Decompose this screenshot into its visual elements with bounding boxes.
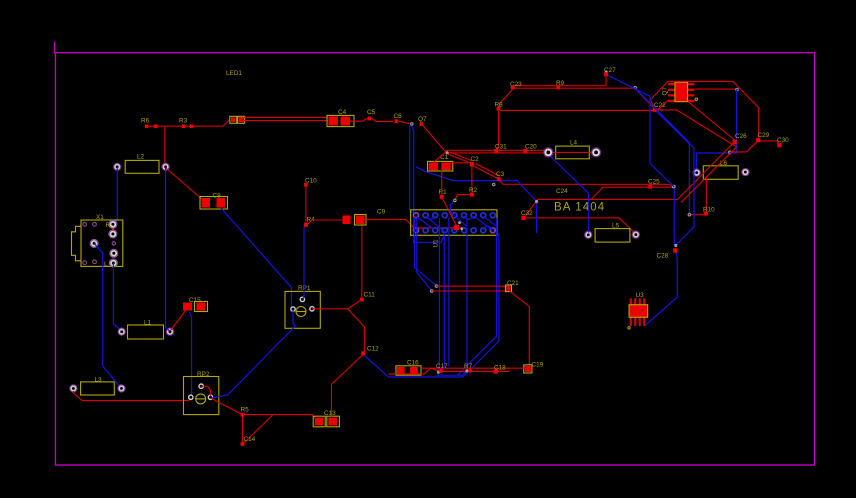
svg-text:BA 1404: BA 1404	[554, 202, 605, 214]
svg-text:U1: U1	[433, 239, 440, 248]
svg-text:R7: R7	[464, 363, 473, 370]
svg-text:C29: C29	[758, 132, 770, 139]
svg-text:C6: C6	[394, 113, 403, 120]
svg-text:C2: C2	[471, 156, 480, 163]
svg-text:C28: C28	[657, 253, 669, 260]
svg-text:C12: C12	[367, 346, 379, 353]
svg-text:LED1: LED1	[226, 70, 242, 77]
svg-text:L4: L4	[570, 140, 578, 147]
svg-text:C1: C1	[440, 154, 449, 161]
svg-text:C9: C9	[377, 209, 386, 216]
svg-text:C17: C17	[436, 363, 448, 370]
svg-text:R3: R3	[179, 118, 188, 125]
svg-text:U3: U3	[636, 292, 645, 299]
svg-text:C25: C25	[648, 179, 660, 186]
svg-text:Q7: Q7	[418, 116, 427, 123]
svg-text:C11: C11	[364, 292, 376, 299]
svg-text:C19: C19	[532, 362, 544, 369]
svg-text:R: R	[106, 222, 111, 229]
svg-text:R5: R5	[241, 407, 250, 414]
svg-text:C26: C26	[735, 133, 747, 140]
svg-text:L2: L2	[137, 154, 145, 161]
svg-text:C24: C24	[556, 188, 568, 195]
svg-text:L3: L3	[95, 377, 103, 384]
svg-text:L: L	[104, 261, 108, 268]
svg-text:C14: C14	[244, 436, 256, 443]
svg-text:C5: C5	[367, 109, 376, 116]
svg-text:R6: R6	[141, 118, 150, 125]
svg-text:C30: C30	[777, 137, 789, 144]
